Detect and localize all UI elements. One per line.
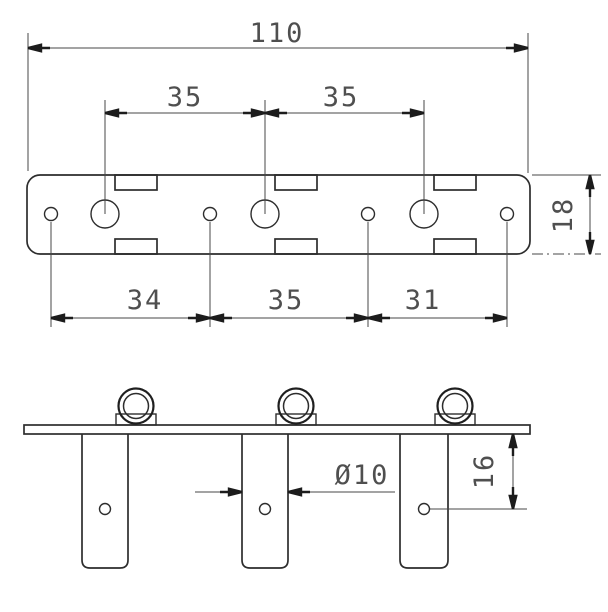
screw-hole-1 — [45, 208, 58, 221]
arrowhead-right — [485, 315, 507, 321]
mounting-notch-top-3 — [434, 175, 476, 190]
arrowhead-right — [402, 110, 424, 116]
ferrule-3 — [435, 389, 475, 426]
arrowhead-left — [288, 489, 310, 495]
mounting-notch-bottom-3 — [434, 239, 476, 254]
arrowhead-left — [210, 315, 232, 321]
arrowhead-left — [105, 110, 127, 116]
dimension-text: 35 — [167, 82, 204, 113]
dim-tuner-pitch: 35 35 — [105, 82, 424, 214]
plate-bar — [24, 425, 530, 434]
arrowhead-right — [506, 45, 528, 51]
ferrule-2 — [276, 389, 316, 426]
ferrule-inner-ring — [443, 394, 468, 419]
arrowhead-up — [587, 175, 593, 197]
post-3 — [400, 434, 448, 568]
dimension-text: 35 — [268, 285, 305, 316]
dim-overall-width: 110 — [28, 18, 528, 173]
dim-post-diameter: Ø10 — [195, 460, 395, 495]
mounting-notch-bottom-1 — [115, 239, 157, 254]
screw-hole-2 — [204, 208, 217, 221]
post-hole-2 — [260, 504, 271, 515]
screw-hole-4 — [501, 208, 514, 221]
post-hole-1 — [100, 504, 111, 515]
screw-hole-3 — [362, 208, 375, 221]
arrowhead-down — [510, 487, 516, 509]
arrowhead-right — [346, 315, 368, 321]
dimension-text: 110 — [250, 18, 305, 49]
arrowhead-left — [51, 315, 73, 321]
post-1 — [82, 434, 128, 568]
dim-screw-spans: 34 35 31 — [51, 222, 507, 327]
mounting-notch-top-2 — [275, 175, 317, 190]
post-hole-3 — [419, 504, 430, 515]
ferrule-1 — [116, 389, 156, 426]
dimension-text: 34 — [127, 285, 164, 316]
drawing-sheet: 110 35 35 18 34 35 31 — [0, 0, 608, 612]
technical-drawing: 110 35 35 18 34 35 31 — [0, 0, 608, 612]
ferrule-inner-ring — [284, 394, 309, 419]
dimension-text: 16 — [469, 453, 500, 490]
dim-hole-drop: 16 — [430, 434, 527, 509]
dimension-text: 18 — [548, 197, 579, 234]
arrowhead-right — [243, 110, 265, 116]
ferrule-inner-ring — [124, 394, 149, 419]
dimension-text: Ø10 — [335, 460, 390, 491]
arrowhead-left — [28, 45, 50, 51]
arrowhead-left — [265, 110, 287, 116]
top-view-plate — [27, 175, 530, 254]
arrowhead-right — [220, 489, 242, 495]
mounting-notch-bottom-2 — [275, 239, 317, 254]
arrowhead-up — [510, 434, 516, 456]
dimension-text: 31 — [405, 285, 442, 316]
arrowhead-left — [368, 315, 390, 321]
post-2 — [242, 434, 288, 568]
front-view-plate — [24, 389, 530, 569]
arrowhead-right — [188, 315, 210, 321]
mounting-notch-top-1 — [115, 175, 157, 190]
arrowhead-down — [587, 232, 593, 254]
dimension-text: 35 — [323, 82, 360, 113]
dim-plate-depth: 18 — [532, 175, 601, 254]
